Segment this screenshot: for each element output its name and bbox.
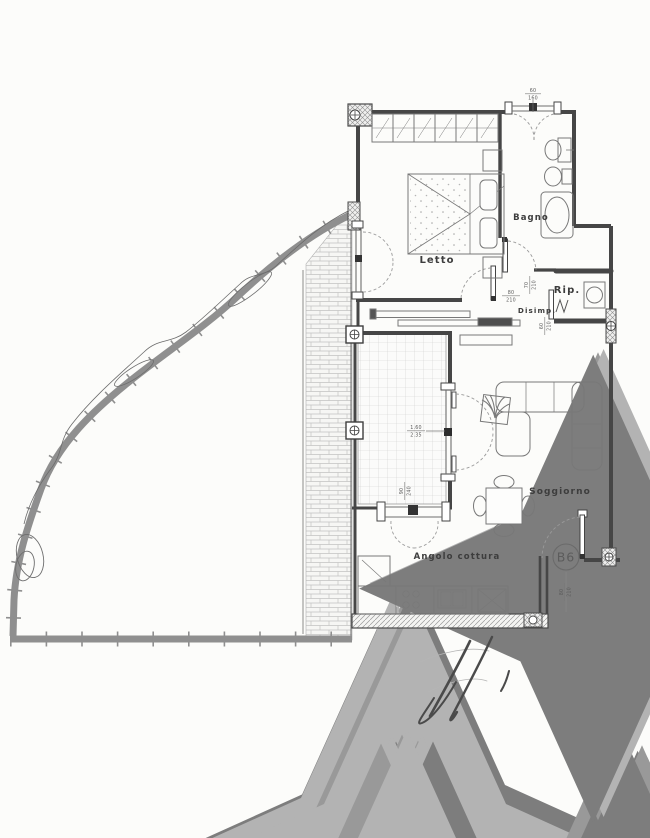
room-label-letto: Letto xyxy=(419,255,454,266)
brick-wall-strip xyxy=(306,206,352,640)
toilet-icon xyxy=(545,167,573,186)
bed-icon xyxy=(408,174,504,254)
sink-icon xyxy=(545,138,574,162)
svg-text:210: 210 xyxy=(547,321,553,331)
column-icon xyxy=(346,422,363,439)
bagno-window xyxy=(505,100,561,142)
dimension-bagno-door: 70 210 xyxy=(524,276,538,294)
unit-badge-label: B6 xyxy=(557,550,576,565)
letto-french-window xyxy=(352,221,393,299)
svg-text:90: 90 xyxy=(399,488,405,495)
svg-text:160: 160 xyxy=(528,96,538,102)
room-label-angolo-cottura: Angolo cottura xyxy=(414,552,501,562)
bagno-door xyxy=(502,237,536,272)
sideboard-icon xyxy=(460,335,512,345)
room-label-rip: Rip. xyxy=(554,285,581,296)
boiler-icon xyxy=(584,282,605,308)
dimension-letto-door: 80 210 xyxy=(502,290,520,304)
room-label-disimp: Disimp. xyxy=(518,306,556,315)
floor-plan-page: Letto Bagno Rip. Disimp. Soggiorno Angol… xyxy=(0,0,650,838)
svg-text:80: 80 xyxy=(559,589,565,596)
hallway-cabinet-icon xyxy=(370,309,520,326)
svg-text:2.35: 2.35 xyxy=(410,433,421,439)
svg-text:240: 240 xyxy=(407,486,413,496)
column-icon xyxy=(346,326,363,343)
fence-ticks xyxy=(13,214,352,636)
svg-text:1.60: 1.60 xyxy=(410,425,421,431)
room-label-bagno: Bagno xyxy=(513,213,549,223)
column-icon xyxy=(606,309,616,343)
plant-icon xyxy=(480,395,510,425)
door-swing-symbol xyxy=(556,300,568,312)
svg-text:80: 80 xyxy=(508,290,515,296)
terrace-tiled-floor xyxy=(358,334,446,504)
soggiorno-french-window xyxy=(441,383,493,481)
column-icon xyxy=(524,613,542,627)
svg-text:60: 60 xyxy=(539,323,545,330)
dimension-rip-door: 60 210 xyxy=(539,317,553,335)
floor-plan-drawing: Letto Bagno Rip. Disimp. Soggiorno Angol… xyxy=(0,0,650,838)
dimension-bagno-window: 60 160 xyxy=(525,88,541,102)
svg-text:210: 210 xyxy=(532,280,538,290)
wardrobe-icon xyxy=(372,114,498,142)
kitchen-window xyxy=(377,502,450,548)
letto-door xyxy=(461,266,496,301)
fence-wire-line xyxy=(24,210,350,524)
svg-text:70: 70 xyxy=(524,282,530,289)
svg-text:210: 210 xyxy=(567,587,573,597)
kitchen-south-wall xyxy=(352,614,548,628)
column-icon xyxy=(602,548,616,566)
svg-text:60: 60 xyxy=(530,88,537,94)
room-label-soggiorno: Soggiorno xyxy=(529,487,591,497)
terrace xyxy=(358,334,446,504)
garden-boundary-curve xyxy=(13,214,352,636)
svg-text:210: 210 xyxy=(506,298,516,304)
